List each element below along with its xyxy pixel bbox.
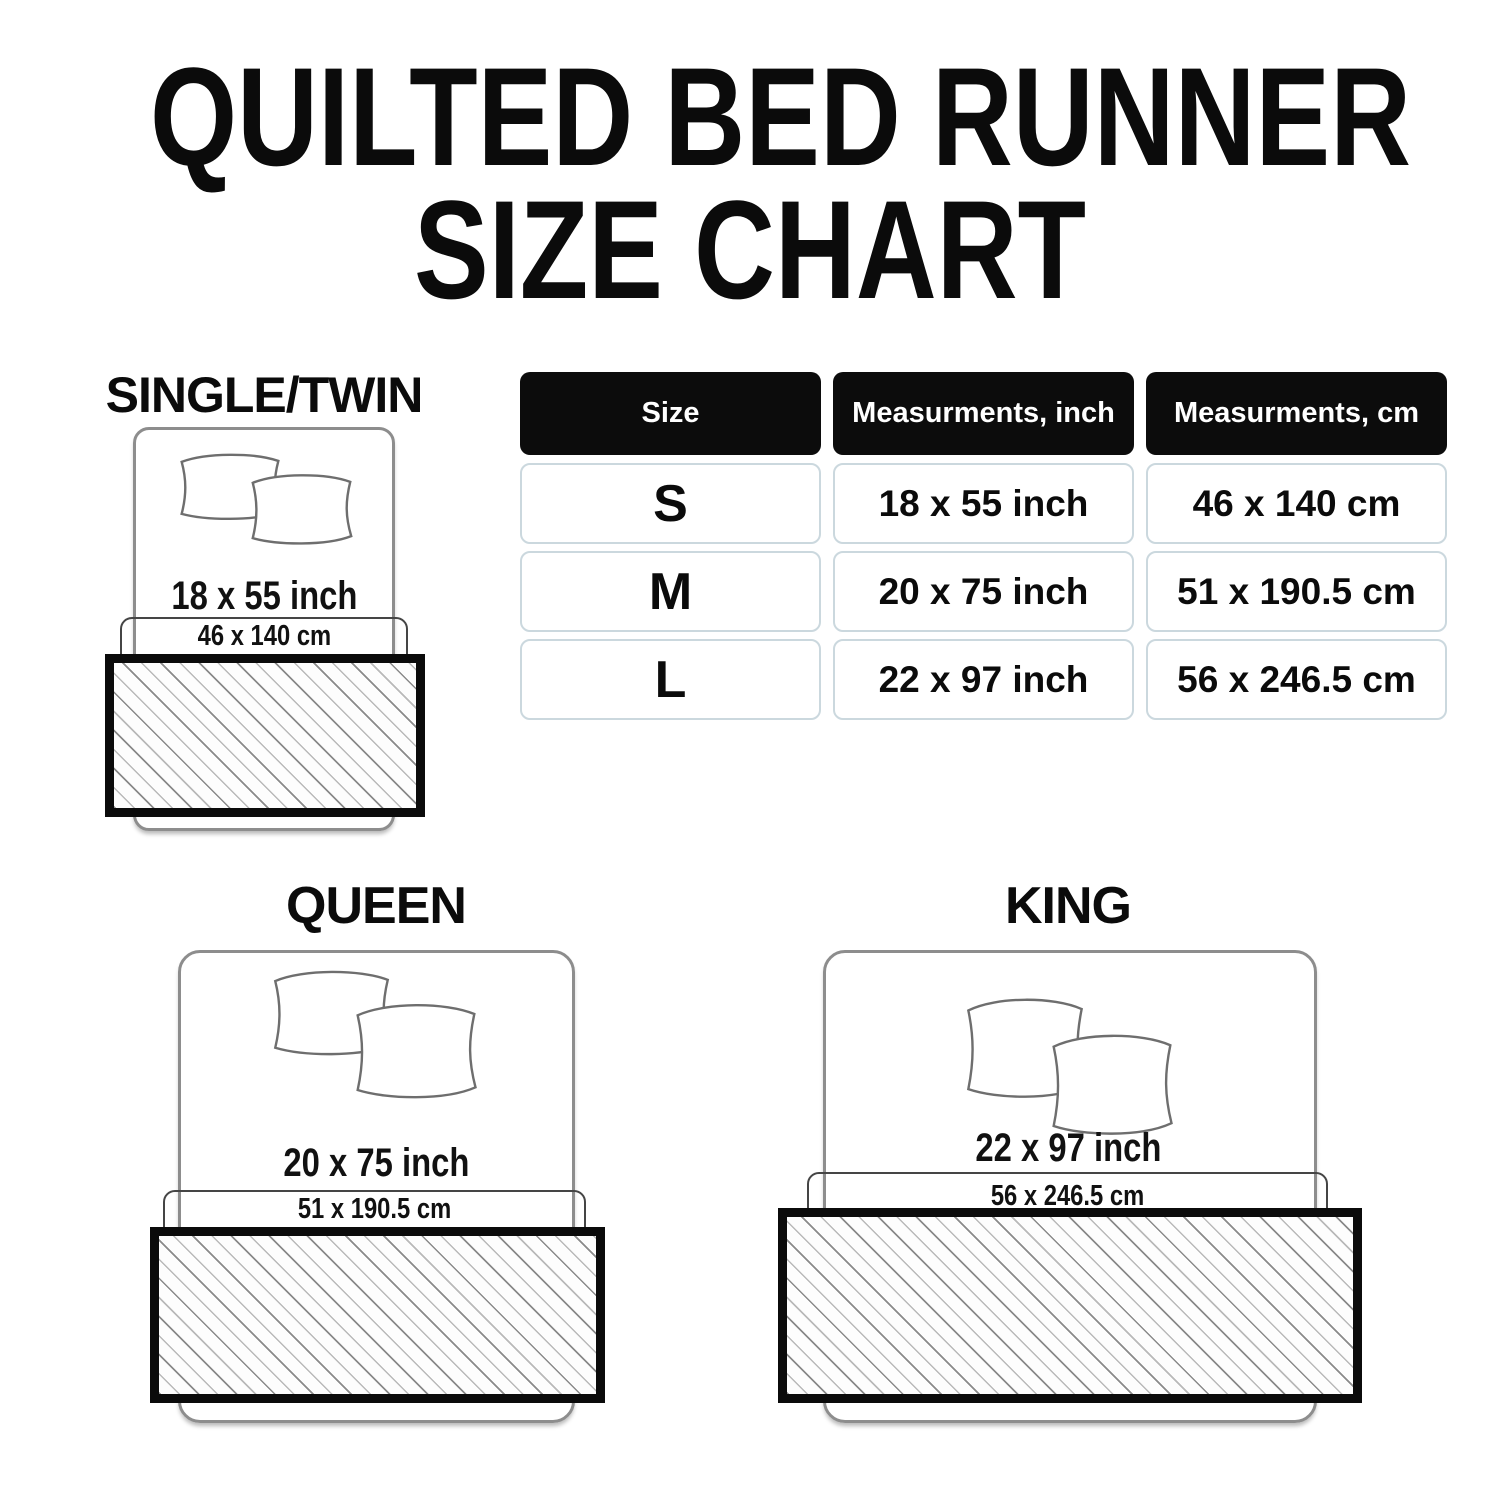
dimension-inch-queen: 20 x 75 inch [126, 1141, 626, 1186]
diagram-label-single-twin: SINGLE/TWIN [14, 366, 514, 424]
runner-swatch-hatched-single-twin [105, 654, 425, 817]
table-cell-inch-m: 20 x 75 inch [833, 551, 1134, 632]
dimension-inch-single-twin: 18 x 55 inch [104, 574, 424, 619]
table-cell-size-s: S [520, 463, 821, 544]
diagram-label-queen: QUEEN [126, 876, 626, 936]
table-cell-inch-s: 18 x 55 inch [833, 463, 1134, 544]
dimension-cm-king: 56 x 246.5 cm [807, 1180, 1328, 1213]
table-cell-cm-s: 46 x 140 cm [1146, 463, 1447, 544]
table-cell-inch-l: 22 x 97 inch [833, 639, 1134, 720]
dimension-cm-queen: 51 x 190.5 cm [163, 1193, 586, 1226]
diagram-label-king: KING [818, 876, 1318, 936]
page-title-line-1: QUILTED BED RUNNER [150, 50, 1350, 183]
runner-swatch-hatched-king [778, 1208, 1362, 1403]
table-cell-cm-m: 51 x 190.5 cm [1146, 551, 1447, 632]
table-header-cm: Measurments, cm [1146, 372, 1447, 455]
pillow-icon [243, 467, 360, 550]
table-cell-cm-l: 56 x 246.5 cm [1146, 639, 1447, 720]
table-header-inch: Measurments, inch [833, 372, 1134, 455]
pillow-icon [346, 994, 486, 1106]
size-chart-infographic: { "title": { "line1": "QUILTED BED RUNNE… [0, 0, 1500, 1500]
runner-swatch-hatched-queen [150, 1227, 605, 1403]
dimension-cm-single-twin: 46 x 140 cm [120, 620, 408, 653]
page-title: QUILTED BED RUNNER SIZE CHART [150, 50, 1350, 316]
page-title-line-2: SIZE CHART [150, 183, 1350, 316]
table-header-size: Size [520, 372, 821, 455]
dimension-inch-king: 22 x 97 inch [818, 1126, 1318, 1171]
table-cell-size-l: L [520, 639, 821, 720]
table-cell-size-m: M [520, 551, 821, 632]
